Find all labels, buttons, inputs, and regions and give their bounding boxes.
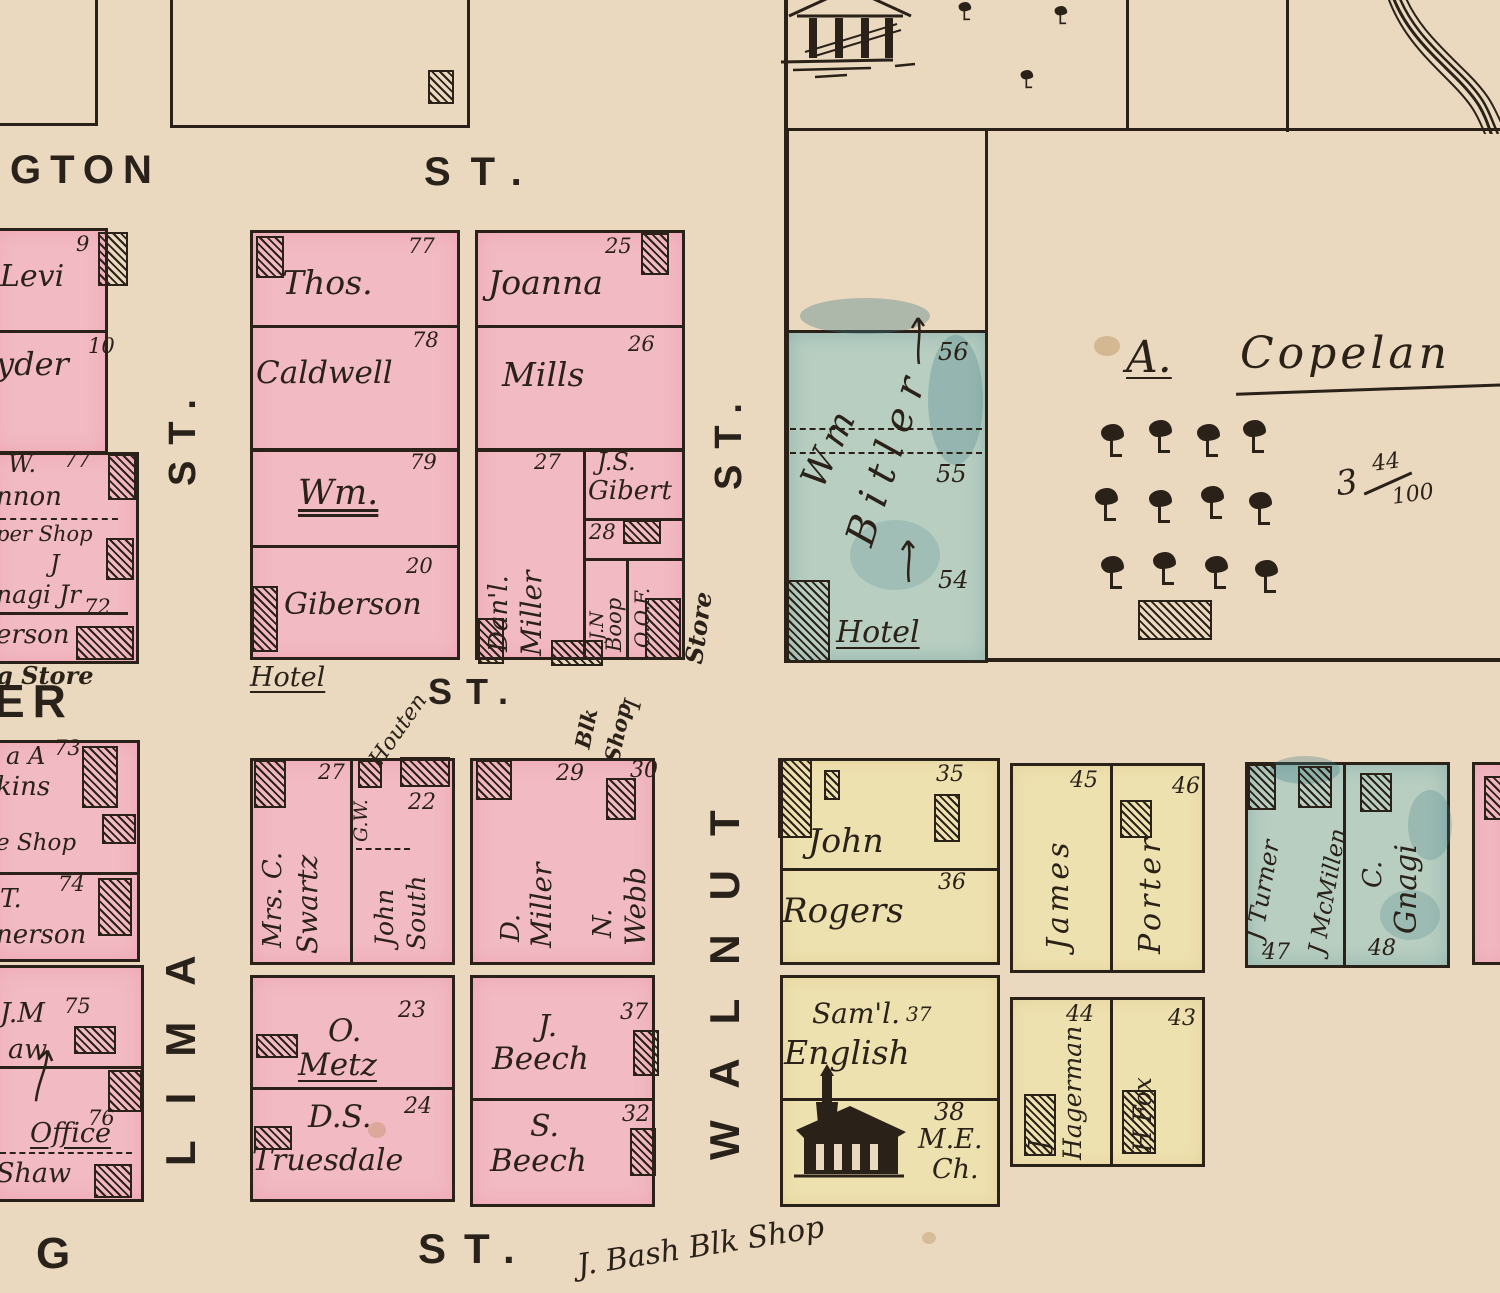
building-footprint — [252, 586, 278, 652]
lot-number-77-left: 77 — [64, 450, 91, 471]
tree-icon — [1152, 552, 1182, 592]
lot-line — [1110, 999, 1113, 1165]
lot-line — [626, 560, 629, 660]
owner-name-joanna: Joanna — [488, 266, 603, 299]
tree-icon — [1148, 420, 1178, 460]
building-footprint — [256, 236, 284, 278]
tree-icon — [1100, 556, 1130, 596]
blacksmith-label-blk: Blk — [572, 707, 601, 751]
owner-name-j: J. — [538, 1012, 557, 1042]
lot-number-36: 36 — [938, 872, 966, 894]
owner-name-mills: Mills — [502, 358, 584, 391]
lot-number-79: 79 — [410, 452, 437, 473]
owner-name-giberson: Giberson — [284, 590, 422, 620]
tree-icon — [1248, 492, 1278, 532]
street-label-st-top: ST. — [424, 152, 542, 192]
lot-number-74: 74 — [58, 874, 85, 895]
lot-number-73: 73 — [54, 738, 81, 759]
lot-number-32: 32 — [622, 1104, 650, 1126]
street-label-st-bottom: ST. — [418, 1228, 533, 1270]
building-footprint — [1248, 764, 1276, 810]
street-label-walnut: WALNUT — [704, 776, 746, 1160]
building-footprint — [645, 598, 681, 660]
owner-name-fragment: nnon — [0, 484, 62, 510]
owner-name-s: S. — [530, 1112, 559, 1142]
owner-name-caldwell: Caldwell — [256, 358, 393, 389]
owner-name-fragment: J.M — [0, 1000, 45, 1027]
lot-number-44: 44 — [1066, 1004, 1094, 1026]
lot-number-22: 22 — [408, 792, 436, 814]
lot-line — [350, 760, 353, 963]
owner-name-fragment: W. — [8, 452, 36, 476]
lot-number-23: 23 — [398, 1000, 426, 1022]
building-footprint — [1484, 776, 1500, 820]
tree-icon — [1100, 424, 1130, 464]
street-label-washington: GTON — [10, 150, 161, 190]
blacksmith-label-shop: Shop — [601, 701, 634, 763]
lot-line — [585, 558, 682, 561]
underline-swash — [1236, 383, 1500, 395]
owner-name-copeland: Copelan — [1240, 332, 1451, 376]
building-footprint — [476, 760, 512, 800]
shop-label-fragment: per Shop — [0, 524, 93, 545]
parcel-boundary-line — [1286, 0, 1289, 132]
building-footprint — [934, 794, 960, 842]
tree-icon — [1094, 488, 1124, 528]
building-footprint — [1360, 773, 1392, 812]
building-footprint — [102, 814, 136, 844]
lot-line — [253, 545, 457, 548]
owner-name-miller-1: Miller — [518, 571, 546, 657]
building-footprint — [108, 454, 136, 500]
owner-name-john-south-2: South — [404, 876, 429, 950]
owner-name-gnagi: Gnagi — [1392, 844, 1422, 934]
owner-name-gw: G.W. — [352, 799, 371, 842]
street-label-g-bottom: G — [36, 1232, 70, 1276]
building-footprint — [98, 232, 128, 286]
lot-number-27b: 27 — [318, 762, 345, 783]
lot-line — [473, 1098, 652, 1101]
building-footprint — [623, 520, 661, 544]
survey-arrow — [898, 536, 920, 588]
building-footprint — [94, 1164, 132, 1198]
owner-name-fragment: erson — [0, 622, 70, 648]
building-footprint — [1138, 600, 1212, 640]
owner-name-yder: yder — [0, 348, 69, 380]
office-label: Office — [30, 1120, 111, 1147]
tree-icon — [1148, 490, 1178, 530]
street-label-walnut-st: ST. — [710, 387, 748, 490]
owner-name-fragment: T. — [0, 886, 22, 912]
lot-number-9: 9 — [76, 234, 89, 255]
church-label-ch: Ch. — [932, 1156, 979, 1183]
lot-number-37: 37 — [620, 1002, 648, 1024]
town-block — [170, 0, 470, 128]
building-footprint — [641, 233, 669, 275]
building-footprint — [74, 1026, 116, 1054]
lot-number-37-english: 37 — [906, 1004, 931, 1024]
owner-name-beech-1: Beech — [492, 1044, 589, 1075]
owner-name-gibert: Gibert — [588, 478, 672, 504]
paper-stain — [922, 1232, 936, 1244]
building-footprint — [606, 778, 636, 820]
owner-name-saml: Sam'l. — [812, 1000, 900, 1028]
lot-number-38: 38 — [934, 1100, 965, 1124]
building-footprint — [1120, 800, 1152, 838]
town-block — [0, 0, 98, 126]
lot-number-78: 78 — [412, 330, 439, 351]
survey-arrow — [908, 312, 930, 370]
street-label-lima: LIMA — [160, 919, 202, 1166]
lot-number-35: 35 — [936, 764, 964, 786]
owner-name-j-hagerman-2: Hagerman — [1060, 1026, 1085, 1160]
owner-name-fragment: J — [50, 552, 60, 576]
lot-number-56: 56 — [938, 340, 969, 364]
owner-name-o: O. — [328, 1016, 361, 1047]
owner-name-n: N. — [590, 909, 616, 938]
lot-number-75: 75 — [64, 996, 91, 1017]
building-footprint — [98, 878, 132, 936]
owner-name-fragment: nagi Jr — [0, 582, 81, 607]
building-footprint — [1298, 766, 1332, 808]
store-label: Store — [682, 590, 716, 665]
lot-number-54: 54 — [938, 568, 969, 592]
owner-name-boop: Boop — [604, 598, 625, 652]
tree-icon — [1242, 420, 1272, 460]
lot-line-dashed — [356, 848, 410, 850]
owner-name-wm: Wm. — [298, 476, 378, 511]
lot-number-46: 46 — [1172, 776, 1200, 798]
acreage-denominator: 100 — [1391, 481, 1436, 509]
street-label-st-mid: ST. — [428, 674, 522, 710]
owner-name-copeland-initial: A. — [1126, 336, 1172, 380]
building-footprint — [778, 758, 812, 838]
lot-number-48: 48 — [1368, 938, 1396, 960]
church-drawing-top — [775, 0, 925, 88]
lot-line-dashed — [0, 518, 118, 520]
lot-number-55: 55 — [936, 462, 967, 486]
building-footprint — [82, 746, 118, 808]
lot-number-47: 47 — [1262, 942, 1290, 964]
owner-name-porter: Porter — [1136, 834, 1166, 954]
owner-name-c: C. — [1360, 861, 1386, 888]
lot-line — [0, 330, 105, 333]
owner-name-fragment: a A — [6, 744, 45, 768]
lot-line — [478, 325, 682, 328]
lot-line — [253, 1087, 452, 1090]
shrub-icon — [1020, 70, 1037, 92]
owner-name-john-rogers-1: John — [808, 824, 884, 857]
building-footprint — [478, 618, 504, 664]
lot-number-10: 10 — [88, 336, 115, 357]
owner-name-john-south-1: John — [372, 889, 397, 946]
owner-name-fragment: nerson — [0, 922, 86, 948]
tree-icon — [1254, 560, 1284, 600]
owner-name-swartz: Swartz — [294, 855, 322, 954]
shrub-icon — [958, 2, 975, 24]
lot-line — [478, 448, 682, 452]
tree-icon — [1200, 486, 1230, 526]
building-footprint — [256, 1034, 298, 1058]
owner-name-webb: Webb — [622, 867, 650, 946]
paper-stain — [1094, 336, 1120, 356]
owner-name-fragment: kins — [0, 774, 50, 800]
building-footprint — [428, 70, 454, 104]
lot-number-24: 24 — [404, 1096, 432, 1118]
building-footprint — [254, 760, 286, 808]
owner-name-miller-2: Miller — [528, 863, 556, 949]
building-footprint — [1122, 1090, 1156, 1154]
building-footprint — [633, 1030, 659, 1076]
lot-number-45: 45 — [1070, 770, 1098, 792]
owner-name-js: J.S. — [597, 450, 636, 474]
blacksmith-note-bash: J. Bash Blk Shop — [575, 1213, 826, 1282]
lot-number-43: 43 — [1168, 1008, 1196, 1030]
lot-number-72: 72 — [84, 597, 111, 618]
lot-number-27: 27 — [534, 452, 561, 473]
building-footprint — [824, 770, 840, 800]
building-footprint — [106, 538, 134, 580]
lot-number-25: 25 — [605, 236, 632, 257]
church-label-me: M.E. — [918, 1126, 983, 1153]
church-drawing-me — [792, 1064, 910, 1184]
owner-name-d: D. — [498, 914, 524, 942]
owner-name-john-rogers-2: Rogers — [782, 894, 904, 928]
tree-icon — [1196, 424, 1226, 464]
shop-label-fragment: e Shop — [0, 832, 76, 855]
lot-line-dashed — [0, 1152, 132, 1154]
street-label-lima-st: ST. — [164, 383, 202, 486]
owner-name-thos: Thos. — [282, 266, 373, 299]
tree-icon — [1204, 556, 1234, 596]
owner-name-ds: D.S. — [308, 1102, 372, 1133]
owner-name-james: James — [1044, 838, 1074, 950]
store-label-fragment: g Store — [0, 664, 93, 688]
building-footprint — [630, 1128, 656, 1176]
hotel-label: Hotel — [250, 664, 325, 691]
building-footprint — [1024, 1094, 1056, 1156]
lot-number-20: 20 — [406, 556, 433, 577]
owner-name-mrs-c: Mrs. C. — [260, 852, 286, 948]
acreage-whole: 3 — [1334, 465, 1360, 502]
parcel-boundary-line — [1126, 0, 1129, 130]
river — [1372, 0, 1500, 138]
building-footprint — [76, 626, 134, 660]
plat-map: GTON ST. ER ST. G ST. ST. LIMA ST. WALNU… — [0, 0, 1500, 1293]
acreage-numerator: 44 — [1371, 450, 1402, 476]
owner-name-truesdale: Truesdale — [252, 1146, 403, 1176]
owner-name-beech-2: Beech — [490, 1146, 587, 1177]
owner-name-metz: Metz — [298, 1050, 377, 1081]
owner-name-levi: Levi — [0, 262, 64, 292]
building-footprint — [786, 580, 830, 662]
lot-line — [0, 1066, 141, 1069]
hotel-label: Hotel — [836, 618, 920, 648]
lot-number-77: 77 — [408, 236, 435, 257]
building-footprint — [400, 757, 450, 787]
building-footprint — [551, 640, 603, 666]
lot-number-29: 29 — [556, 763, 584, 785]
owner-name-shaw: Shaw — [0, 1160, 71, 1187]
town-block — [780, 758, 1000, 965]
lot-number-26: 26 — [628, 334, 655, 355]
lot-number-28: 28 — [589, 522, 616, 543]
lot-line — [1110, 765, 1113, 971]
shrub-icon — [1054, 6, 1071, 28]
